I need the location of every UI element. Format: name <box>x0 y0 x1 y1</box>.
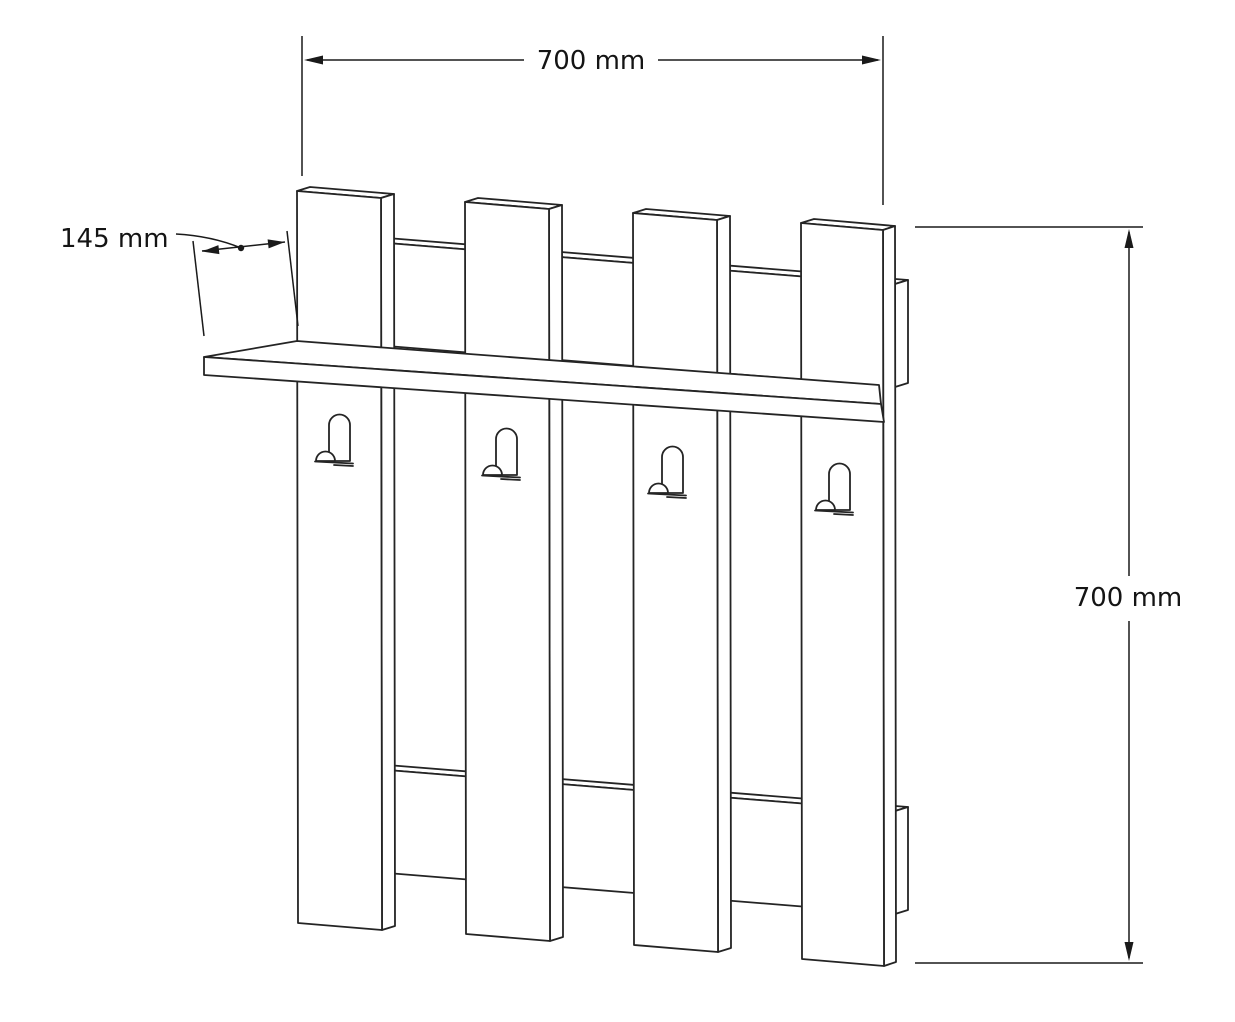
dimension-label-overall-width: 700 mm <box>537 46 646 76</box>
arrowhead-left-icon <box>202 245 219 254</box>
dimension-overall-width: 700 mm <box>302 36 883 205</box>
dimension-shelf-depth: 145 mm <box>60 224 298 336</box>
arrowhead-right-icon <box>862 56 881 65</box>
arrowhead-left-icon <box>304 56 323 65</box>
leader-line <box>176 234 241 248</box>
arrowhead-up-icon <box>1125 229 1134 248</box>
coat-rack-technical-drawing: 700 mm 145 mm 700 mm <box>0 0 1235 1022</box>
dimension-overall-height: 700 mm <box>915 227 1182 963</box>
dimension-label-overall-height: 700 mm <box>1074 583 1183 613</box>
slat-4 <box>801 219 896 966</box>
slat-2 <box>465 198 563 941</box>
arrowhead-right-icon <box>268 239 285 248</box>
arrowhead-down-icon <box>1125 942 1134 961</box>
dimension-label-shelf-depth: 145 mm <box>60 224 169 254</box>
extension-line <box>193 241 204 336</box>
slat-1 <box>297 187 395 930</box>
slat-3 <box>633 209 731 952</box>
technical-drawing-page: 700 mm 145 mm 700 mm <box>0 0 1235 1022</box>
